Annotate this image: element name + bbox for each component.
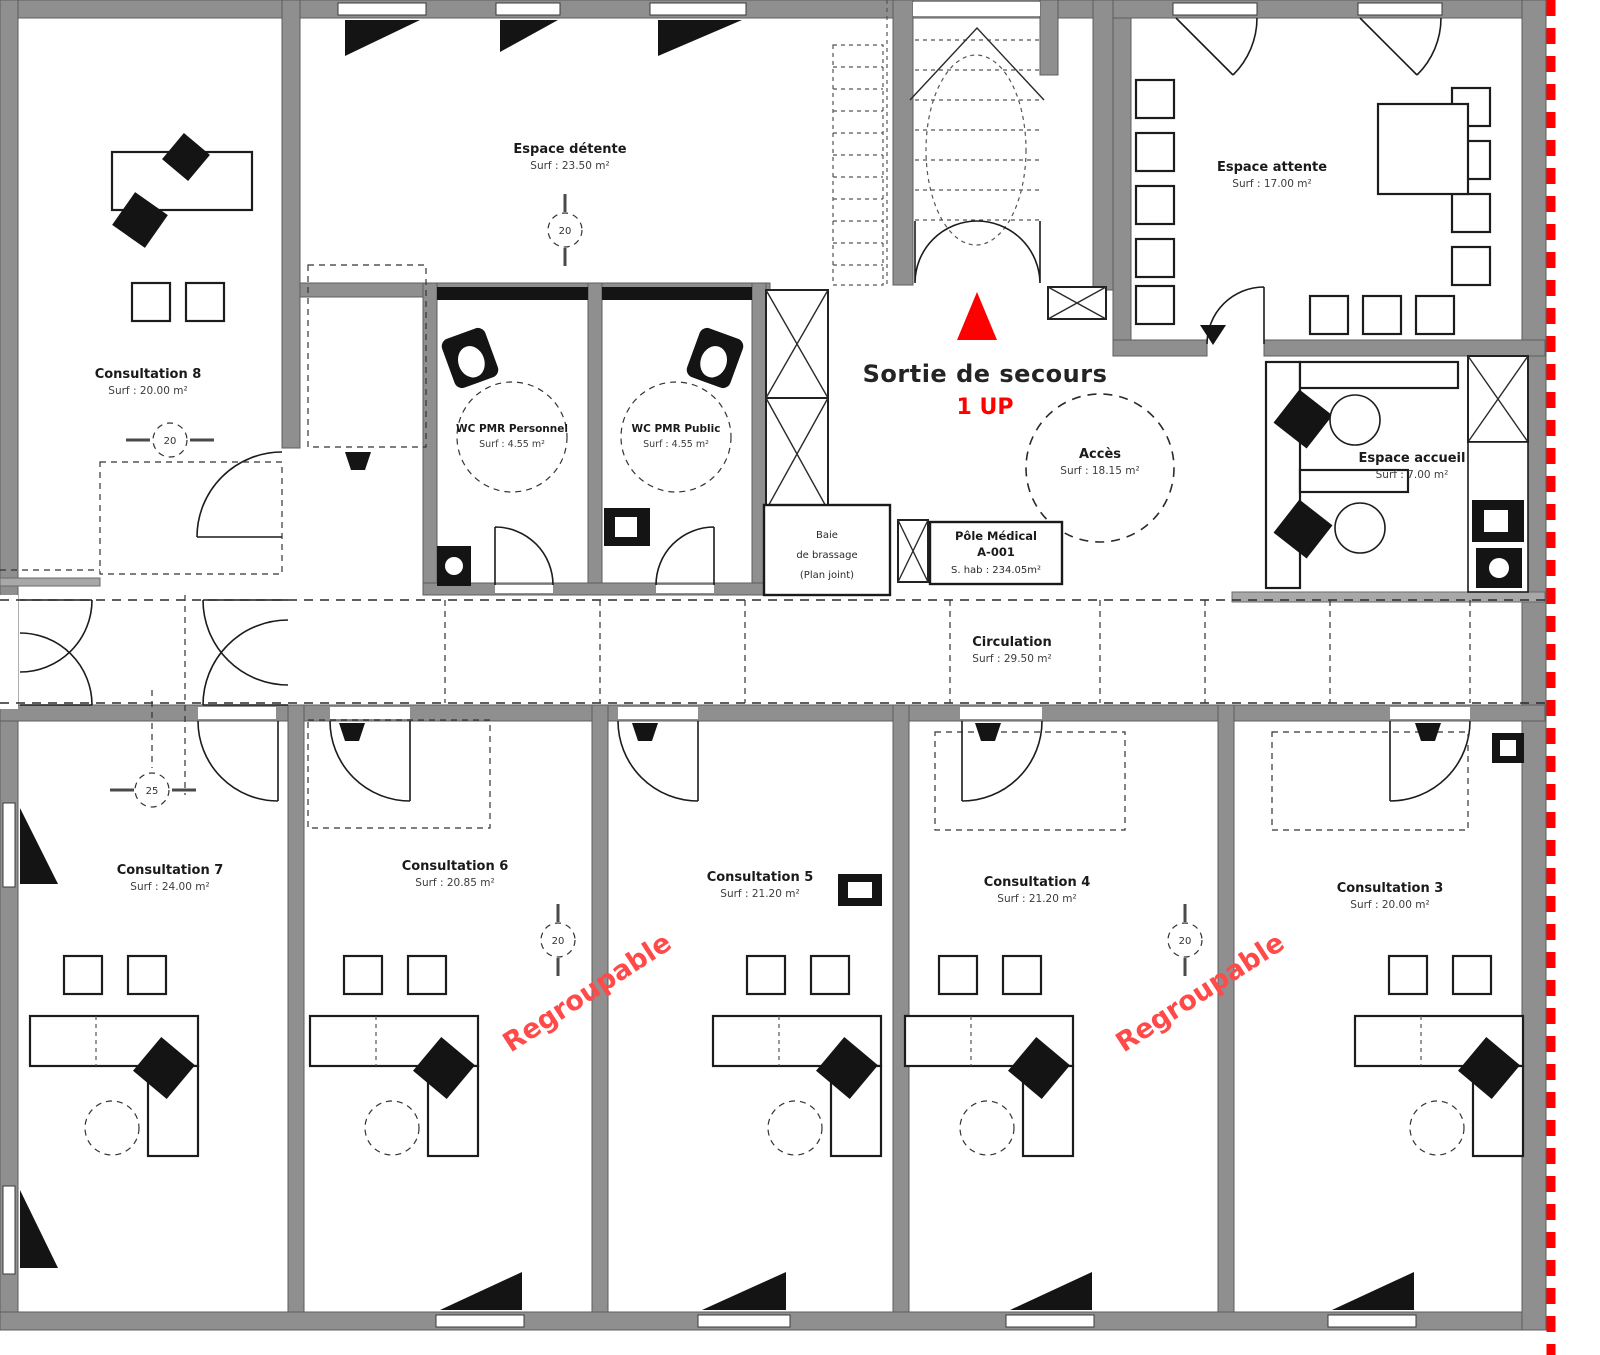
espace-attente-furniture [1136, 80, 1490, 345]
regroupable-label-left: Regroupable [498, 927, 678, 1059]
area-consultation4: Surf : 21.20 m² [997, 893, 1076, 905]
pole-medical-code: A-001 [977, 545, 1015, 559]
label-consultation8: Consultation 8 [95, 367, 202, 382]
pole-medical-surface: S. hab : 234.05m² [951, 565, 1041, 576]
deskset-c3 [1355, 956, 1523, 1156]
deskset-c6 [310, 956, 478, 1156]
wc-left-fixtures [437, 287, 588, 586]
label-consultation5: Consultation 5 [707, 870, 814, 885]
emergency-exit-label: Sortie de secours [863, 360, 1108, 388]
area-consultation5: Surf : 21.20 m² [720, 888, 799, 900]
area-circulation: Surf : 29.50 m² [972, 653, 1051, 665]
area-espace-accueil: Surf : 7.00 m² [1376, 469, 1449, 481]
label-consultation4: Consultation 4 [984, 875, 1091, 890]
label-wc-personnel: WC PMR Personnel [456, 423, 568, 435]
doors [20, 18, 1470, 801]
baie-line2: de brassage [796, 550, 857, 561]
label-espace-attente: Espace attente [1217, 160, 1327, 175]
attente-table [1378, 104, 1468, 194]
label-espace-detente: Espace détente [513, 142, 626, 157]
stairwell [833, 0, 1044, 285]
label-circulation: Circulation [972, 635, 1051, 650]
window-swing-icons [20, 20, 1414, 1310]
area-wc-public: Surf : 4.55 m² [643, 439, 709, 450]
ladder [833, 45, 883, 285]
regroupable-label-right: Regroupable [1111, 927, 1291, 1059]
label-consultation3: Consultation 3 [1337, 881, 1444, 896]
label-acces: Accès [1079, 447, 1121, 462]
label-wc-public: WC PMR Public [632, 423, 721, 435]
area-consultation6: Surf : 20.85 m² [415, 877, 494, 889]
marker-3: 25 [146, 786, 159, 797]
deskset-c5 [713, 956, 881, 1156]
area-consultation7: Surf : 24.00 m² [130, 881, 209, 893]
marker-1: 20 [164, 436, 177, 447]
floor-plan-page: Consultation 8 Surf : 20.00 m² Espace dé… [0, 0, 1600, 1355]
area-acces: Surf : 18.15 m² [1060, 465, 1139, 477]
pole-medical-title: Pôle Médical [955, 529, 1037, 543]
exit-up-arrow-icon [957, 292, 997, 340]
technical-shafts [764, 287, 1528, 595]
area-consultation3: Surf : 20.00 m² [1350, 899, 1429, 911]
emergency-exit-level: 1 UP [957, 395, 1014, 420]
area-wc-personnel: Surf : 4.55 m² [479, 439, 545, 450]
wc-right-fixtures [602, 287, 752, 546]
label-espace-accueil: Espace accueil [1359, 451, 1466, 466]
floor-plan-drawing: Consultation 8 Surf : 20.00 m² Espace dé… [0, 0, 1600, 1355]
label-consultation6: Consultation 6 [402, 859, 509, 874]
deskset-c4 [905, 956, 1073, 1156]
consultation8-furniture [112, 133, 252, 321]
label-consultation7: Consultation 7 [117, 863, 224, 878]
deskset-c7 [30, 956, 198, 1156]
area-espace-attente: Surf : 17.00 m² [1232, 178, 1311, 190]
consultation-furniture [30, 956, 1523, 1156]
area-espace-detente: Surf : 23.50 m² [530, 160, 609, 172]
marker-4: 20 [552, 936, 565, 947]
wc-accueil-fixtures [1468, 442, 1528, 592]
marker-5: 20 [1179, 936, 1192, 947]
baie-line1: Baie [816, 530, 838, 541]
baie-line3: (Plan joint) [800, 570, 854, 581]
marker-2: 20 [559, 226, 572, 237]
area-consultation8: Surf : 20.00 m² [108, 385, 187, 397]
